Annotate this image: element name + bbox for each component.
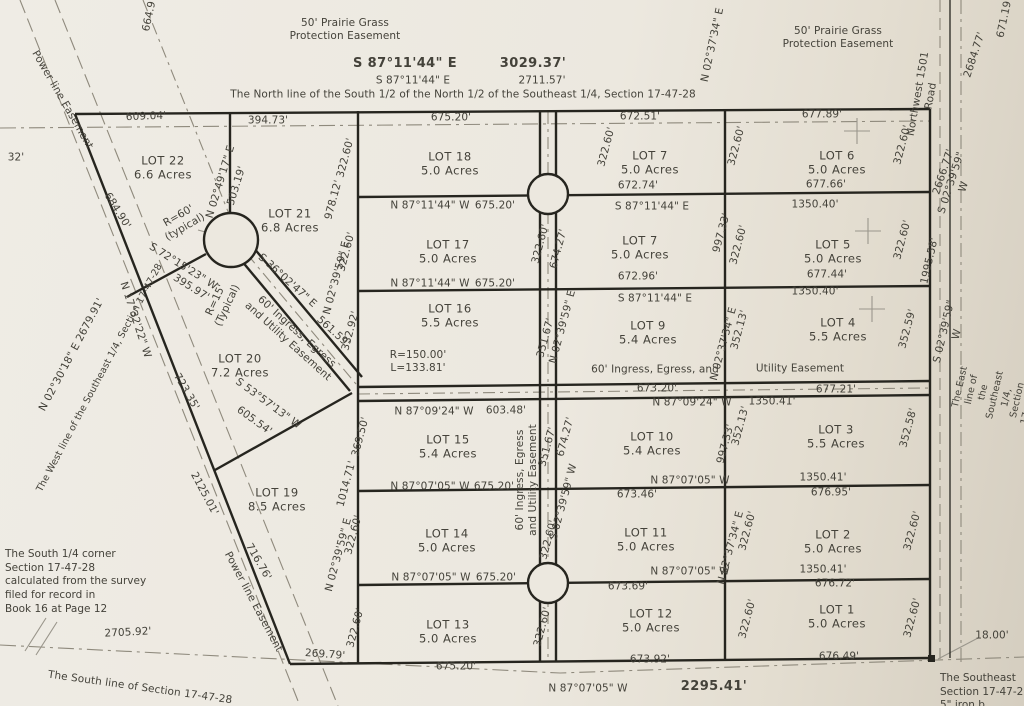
survey-plat-canvas: 50' Prairie Grass Protection Easement 50… (0, 0, 1024, 706)
plat-line-drawing (0, 0, 1024, 706)
lot-boundary-lines (75, 109, 930, 664)
southeast-corner-monument (928, 655, 935, 662)
section-dashed-lines (0, 0, 1024, 706)
